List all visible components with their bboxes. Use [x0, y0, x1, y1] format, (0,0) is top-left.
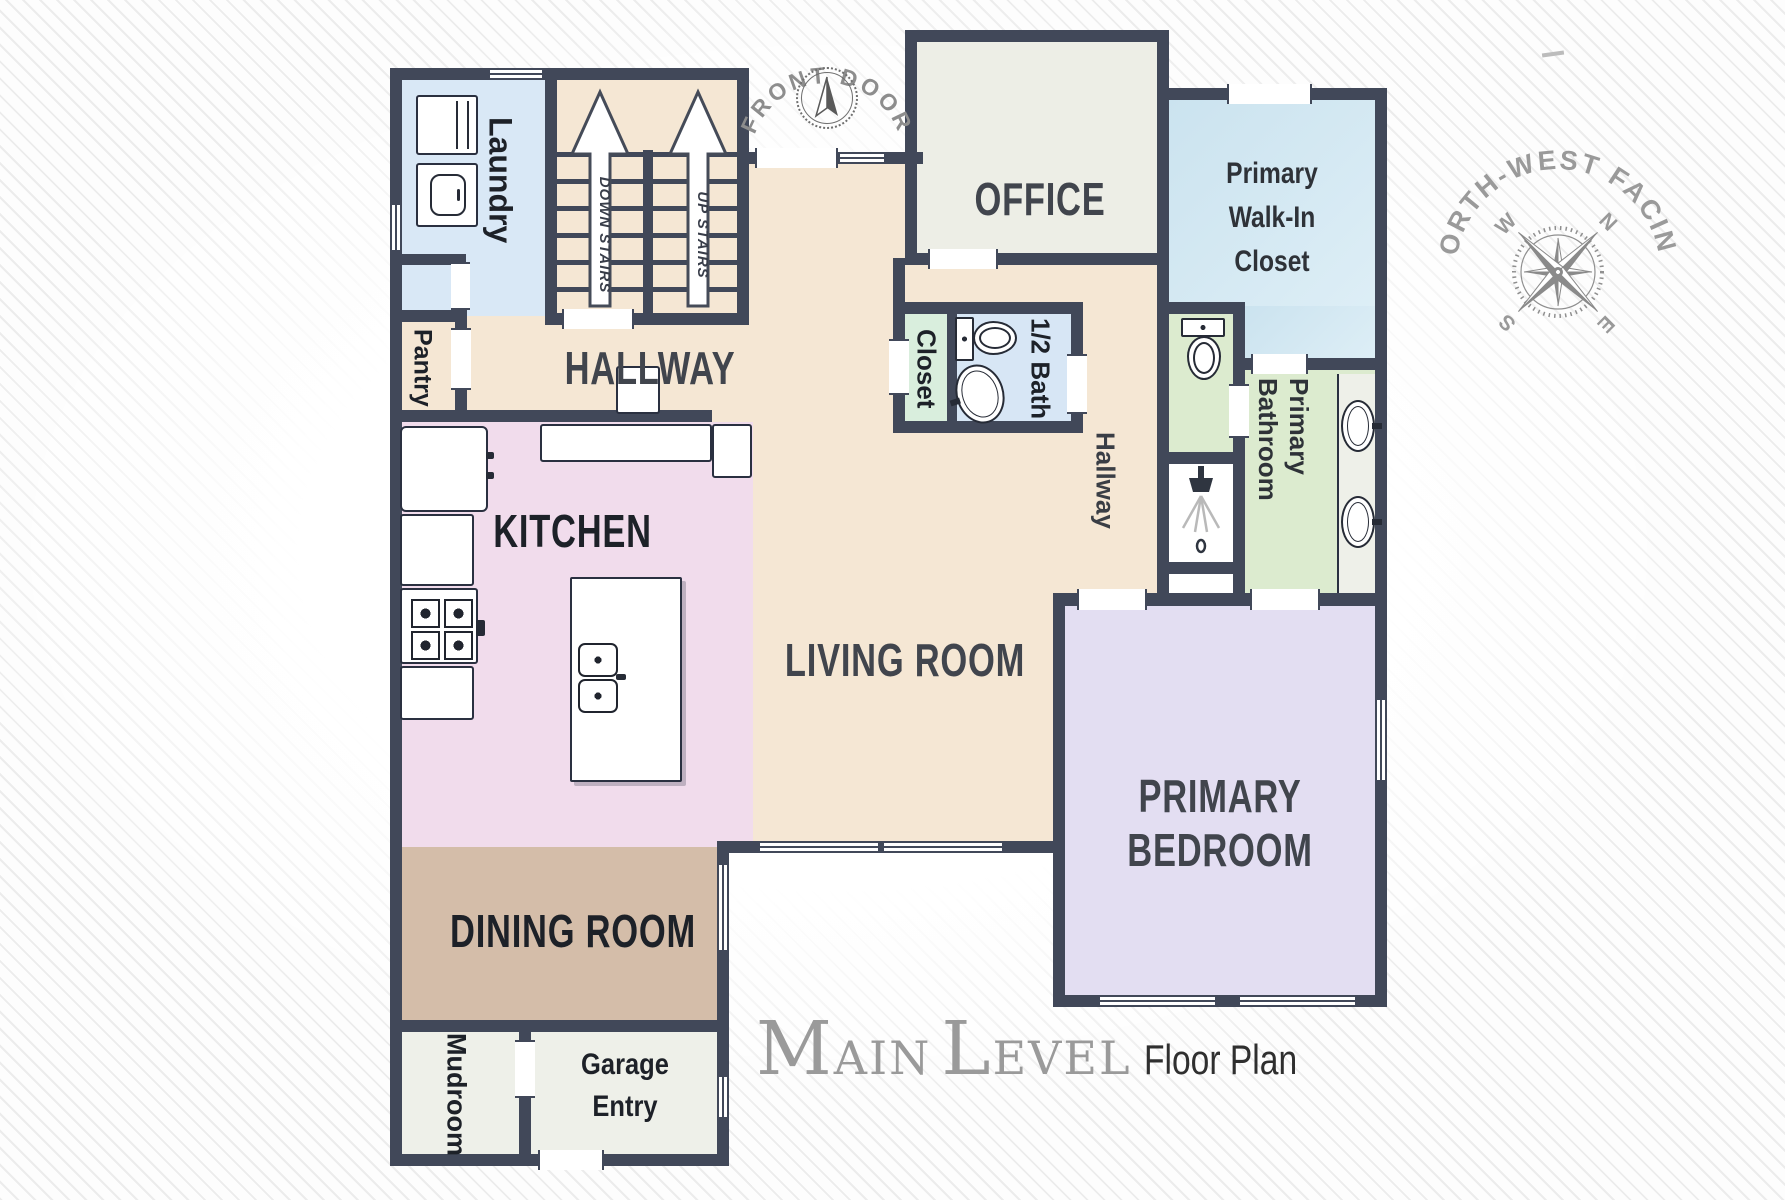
- wall-segment: [1053, 593, 1065, 1007]
- toilet-icon: [955, 317, 1019, 363]
- wall-segment: [390, 1020, 729, 1032]
- compass-n: N: [1594, 209, 1621, 236]
- kitchen-counter-top: [540, 424, 712, 462]
- compass-rose-icon: NORTH-WEST FACING N E S W: [1420, 140, 1710, 410]
- wall-segment: [545, 78, 557, 325]
- svg-text:NORTH-WEST FACING: NORTH-WEST FACING: [1420, 140, 1683, 258]
- shower-icon: [1171, 466, 1231, 558]
- door-garage: [538, 1150, 604, 1170]
- title-word-level: Level: [941, 1006, 1131, 1092]
- wall-segment: [643, 150, 653, 318]
- wall-segment: [893, 302, 1083, 314]
- wall-segment: [1157, 30, 1169, 314]
- up-stairs-label: UP STAIRS: [694, 191, 711, 278]
- orientation-label: NORTH-WEST FACING: [1420, 140, 1683, 258]
- title-word-main: Main: [756, 1006, 931, 1092]
- label-hallway-small: Hallway: [1086, 424, 1124, 536]
- wall-segment: [1233, 302, 1245, 464]
- window: [390, 205, 402, 250]
- door-closet-to-bath: [1251, 354, 1308, 374]
- front-door-compass-icon: [796, 67, 858, 129]
- title-suffix: Floor Plan: [1144, 1036, 1297, 1084]
- fridge-icon: [400, 426, 488, 512]
- down-stairs-label: DOWN STAIRS: [596, 177, 613, 294]
- window: [717, 1077, 729, 1117]
- door-toilet-nook: [1229, 384, 1249, 438]
- page-title: Main Level Floor Plan: [756, 1006, 1335, 1098]
- label-laundry: Laundry: [482, 100, 518, 260]
- door-stairs: [562, 309, 634, 329]
- kitchen-counter-corner: [712, 424, 752, 478]
- kitchen-counter: [400, 666, 474, 720]
- label-mudroom: Mudroom: [438, 1038, 474, 1150]
- label-walk-in-closet: Primary Walk-In Closet: [1206, 148, 1337, 288]
- door-closet: [889, 339, 909, 395]
- label-hallway: HALLWAY: [568, 346, 733, 390]
- label-closet: Closet: [908, 322, 944, 416]
- stove-icon: [400, 588, 478, 664]
- sink-icon: [1341, 496, 1375, 548]
- door-mudroom: [515, 1040, 535, 1098]
- label-primary-bathroom: Primary Bathroom: [1264, 378, 1302, 588]
- door-walk-in-closet: [1227, 84, 1312, 104]
- wall-segment: [1375, 88, 1387, 1007]
- down-stairs-arrow-icon: DOWN STAIRS: [568, 88, 632, 310]
- window: [1375, 700, 1387, 780]
- compass-s: S: [1494, 309, 1520, 335]
- window: [490, 68, 542, 80]
- label-garage-entry: Garage Entry: [566, 1044, 685, 1128]
- door-half-bath: [1067, 354, 1087, 414]
- door-bedroom-1: [1077, 589, 1147, 610]
- window: [884, 841, 1002, 853]
- label-half-bath: 1/2 Bath: [1022, 316, 1058, 422]
- door-bedroom-2: [1250, 589, 1320, 610]
- label-primary-bedroom: PRIMARY BEDROOM: [1130, 768, 1310, 878]
- island-sink-icon: [578, 643, 622, 717]
- compass-e: E: [1593, 311, 1619, 337]
- dryer-icon: [416, 163, 478, 227]
- label-dining-room: DINING ROOM: [470, 906, 676, 956]
- washer-icon: [416, 95, 478, 155]
- door-laundry: [451, 262, 470, 310]
- wall-segment: [1233, 452, 1245, 593]
- floor-plan-canvas: DOWN STAIRS UP STAIRS: [0, 0, 1785, 1200]
- compass-w: W: [1491, 209, 1521, 239]
- label-pantry: Pantry: [406, 326, 438, 410]
- window: [760, 841, 878, 853]
- door-office: [928, 249, 998, 269]
- window: [717, 865, 729, 950]
- sink-icon: [1341, 400, 1375, 452]
- label-living-room: LIVING ROOM: [819, 636, 992, 684]
- toilet-icon: [1179, 318, 1225, 382]
- wall-segment: [1157, 302, 1245, 314]
- door-pantry: [451, 328, 471, 390]
- label-office: OFFICE: [965, 176, 1115, 222]
- label-kitchen: KITCHEN: [496, 508, 650, 554]
- kitchen-counter: [400, 514, 474, 586]
- room-walk-in-closet-ext: [1245, 306, 1375, 358]
- wall-segment: [390, 410, 712, 422]
